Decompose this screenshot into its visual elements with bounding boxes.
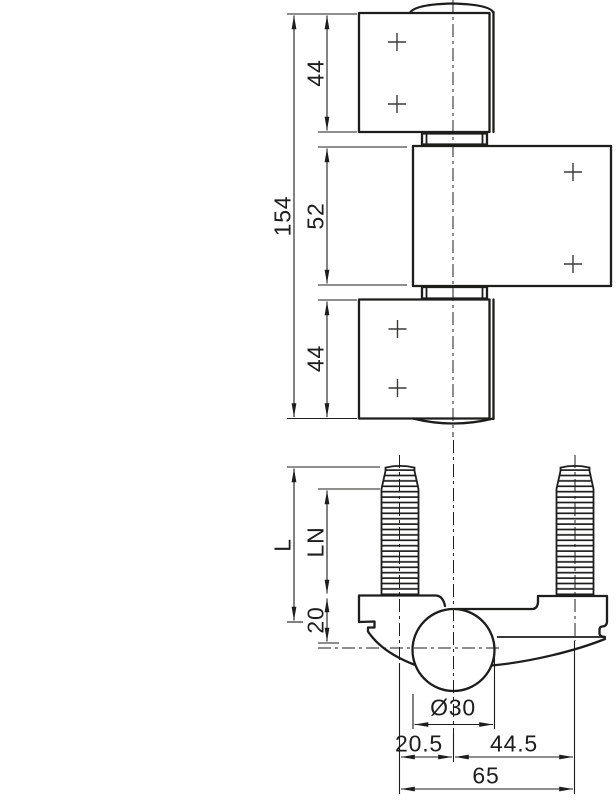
- pin-top-cap: [410, 4, 494, 14]
- dim-top-leaf-height: 44: [303, 59, 329, 86]
- dim-total-height: 154: [270, 196, 296, 237]
- dim-bottom-leaf-height: 44: [303, 345, 329, 372]
- dim-right-stud-offset: 44.5: [490, 731, 538, 757]
- technical-drawing-page: 154 44 52 44: [0, 0, 616, 800]
- dim-left-stud-offset: 20.5: [395, 731, 443, 757]
- screw-hole-crosses: [388, 33, 582, 397]
- front-view: 154 44 52 44: [270, 0, 612, 437]
- bottom-leaf: [359, 300, 490, 419]
- dim-stud-length: L: [270, 538, 296, 552]
- section-centerlines: [318, 440, 575, 733]
- upper-knuckle: [422, 134, 487, 145]
- section-view: L LN 20 Ø30 20.5 44.5 65: [270, 440, 608, 794]
- right-threaded-stud: [557, 466, 594, 595]
- dim-thread-length: LN: [303, 526, 329, 557]
- dim-stud-spacing: 65: [472, 763, 499, 789]
- hinge-body-section: [359, 596, 607, 692]
- middle-leaf: [413, 146, 611, 286]
- dim-body-depth: 20: [303, 606, 329, 633]
- dim-middle-leaf-height: 52: [303, 202, 329, 229]
- body-left-profile: [359, 596, 445, 665]
- top-leaf: [359, 13, 490, 132]
- left-threaded-stud: [382, 466, 419, 595]
- threaded-studs: [382, 466, 594, 595]
- technical-drawing-canvas: 154 44 52 44: [0, 0, 616, 800]
- dim-barrel-diameter: Ø30: [430, 695, 476, 721]
- right-arm-lower-sweep: [492, 639, 606, 666]
- lower-knuckle: [422, 287, 487, 299]
